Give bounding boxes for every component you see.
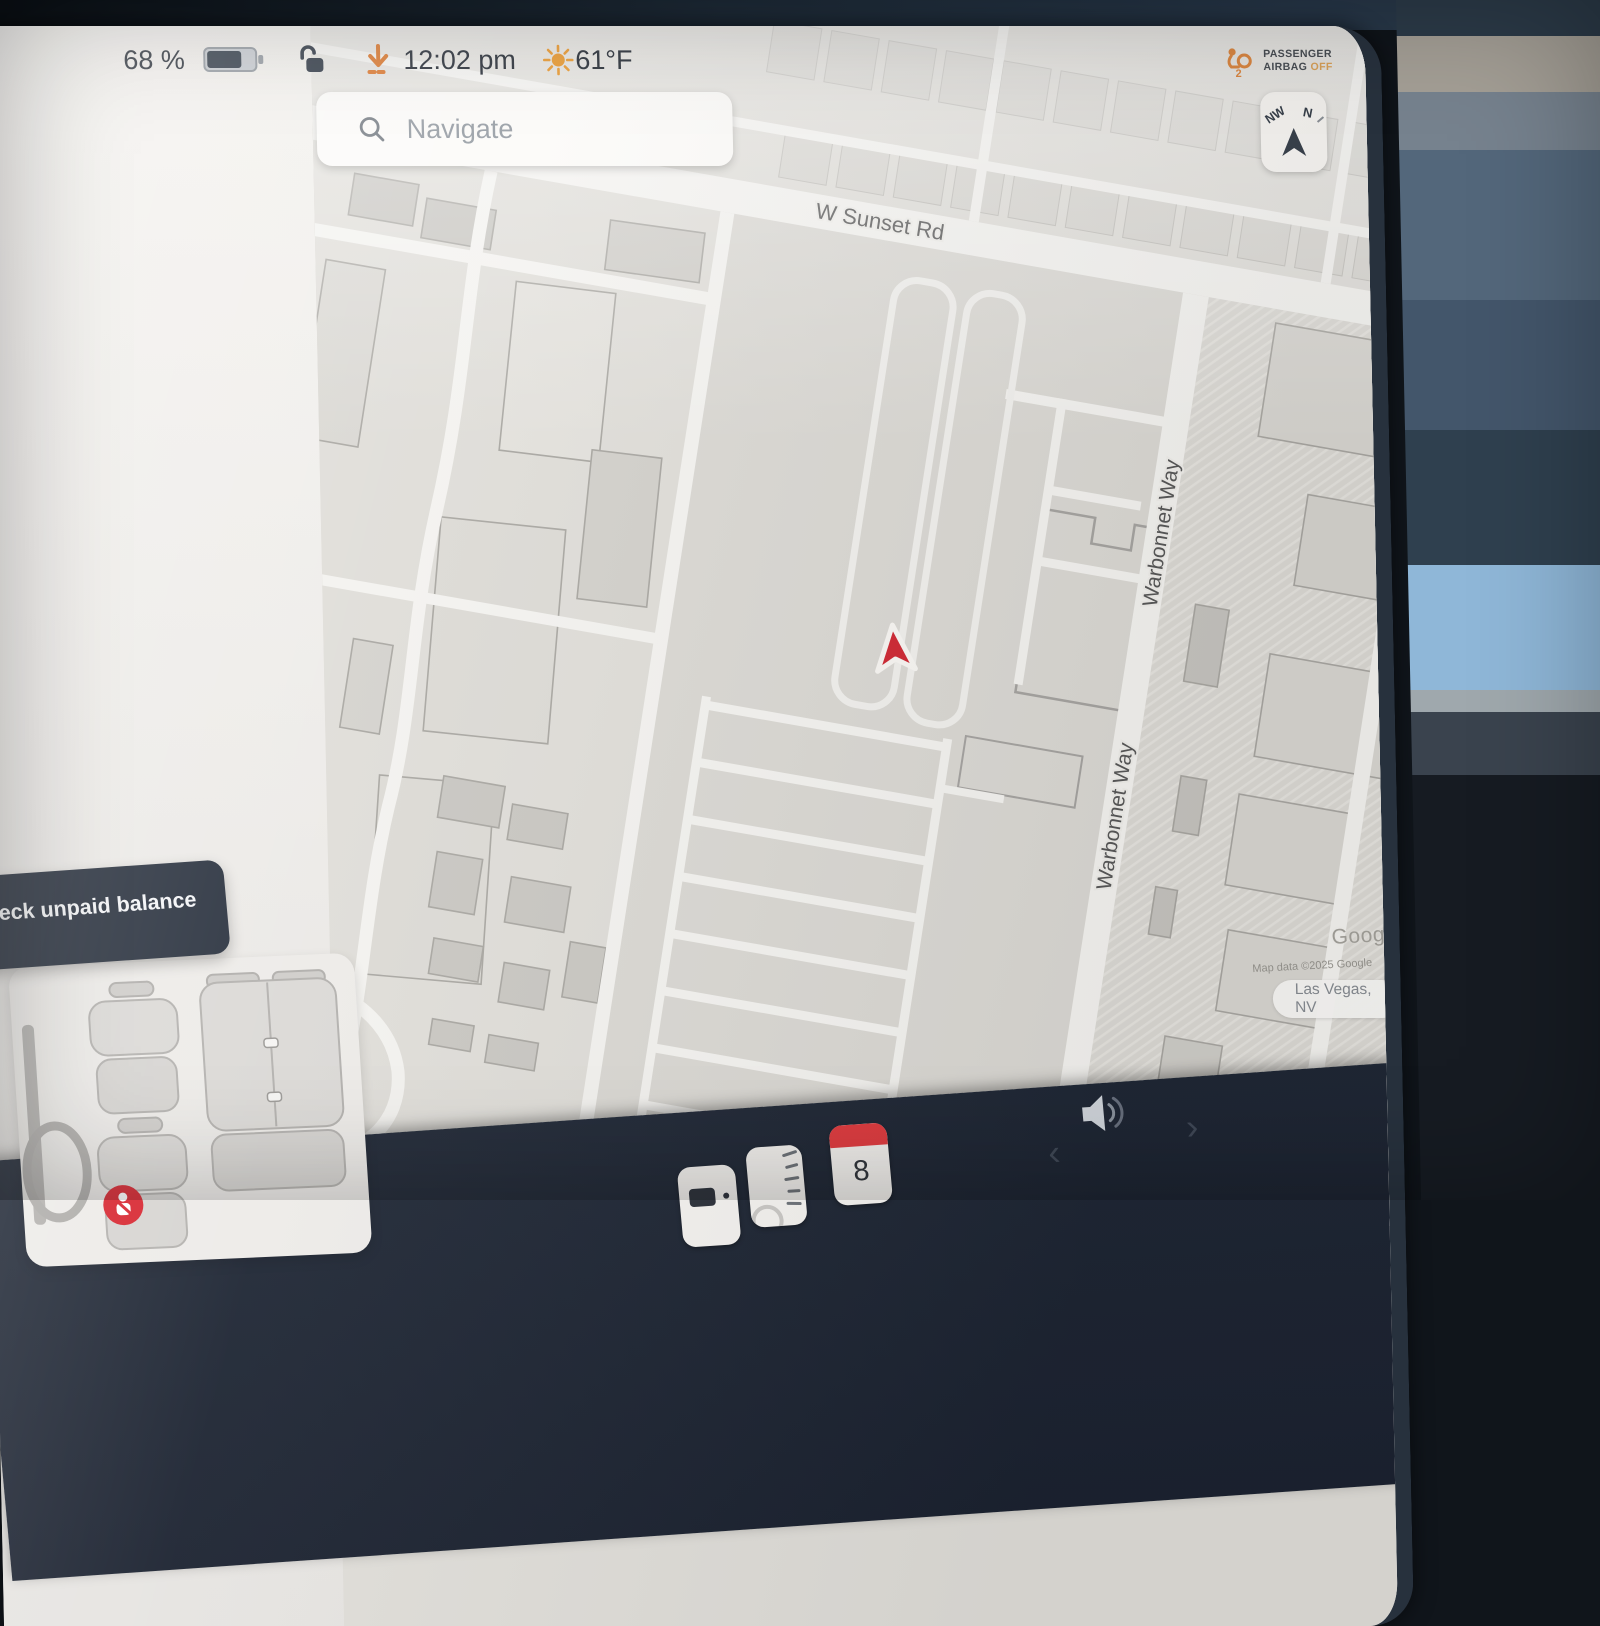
calendar-day: 8: [831, 1153, 892, 1190]
cabin-dashboard-right: [1396, 0, 1600, 1200]
photo-scene: W Sunset Rd Warbonnet Way Warbonnet Way: [0, 0, 1600, 1200]
compass-n-label: N: [1302, 104, 1314, 121]
google-watermark: Google: [1331, 922, 1403, 950]
dock-app-icon-2[interactable]: [745, 1144, 808, 1228]
battery-percent: 68 %: [123, 40, 185, 80]
front-passenger-seat[interactable]: [87, 980, 183, 1114]
dock-app-icon-1[interactable]: [677, 1164, 742, 1248]
chevron-right-icon[interactable]: ›: [1185, 1109, 1200, 1146]
navigate-search-bar[interactable]: [316, 92, 734, 166]
lock-icon[interactable]: [298, 40, 329, 80]
chevron-left-icon[interactable]: ‹: [1047, 1134, 1062, 1171]
software-update-icon[interactable]: [362, 40, 395, 80]
clock: 12:02 pm: [403, 40, 516, 80]
notification-toast[interactable]: eck unpaid balance: [0, 859, 231, 970]
sun-icon: [541, 40, 576, 80]
seat-status-card[interactable]: [8, 953, 373, 1268]
north-arrow-icon: [1282, 128, 1307, 156]
map-canvas: W Sunset Rd Warbonnet Way Warbonnet Way: [311, 26, 1406, 1226]
search-icon: [356, 114, 387, 144]
driver-seat[interactable]: [96, 1116, 192, 1250]
vehicle-location-arrow-icon: [869, 620, 920, 677]
calendar-app-icon[interactable]: 8: [828, 1122, 893, 1206]
status-bar: 68 % 12:02: [0, 40, 1372, 84]
compass-widget[interactable]: NW N: [1260, 92, 1328, 172]
tesla-touchscreen: W Sunset Rd Warbonnet Way Warbonnet Way: [0, 26, 1414, 1626]
rear-bench-seat[interactable]: [199, 969, 349, 1191]
outside-temperature[interactable]: 61°F: [575, 40, 633, 80]
search-input[interactable]: [406, 114, 697, 145]
volume-icon[interactable]: [1075, 1087, 1130, 1143]
city-badge: Las Vegas, NV: [1273, 980, 1402, 1018]
calendar-icon-band: [828, 1122, 888, 1148]
battery-icon: [203, 40, 266, 80]
toast-text: eck unpaid balance: [0, 887, 198, 926]
compass-nw-label: NW: [1263, 104, 1288, 127]
